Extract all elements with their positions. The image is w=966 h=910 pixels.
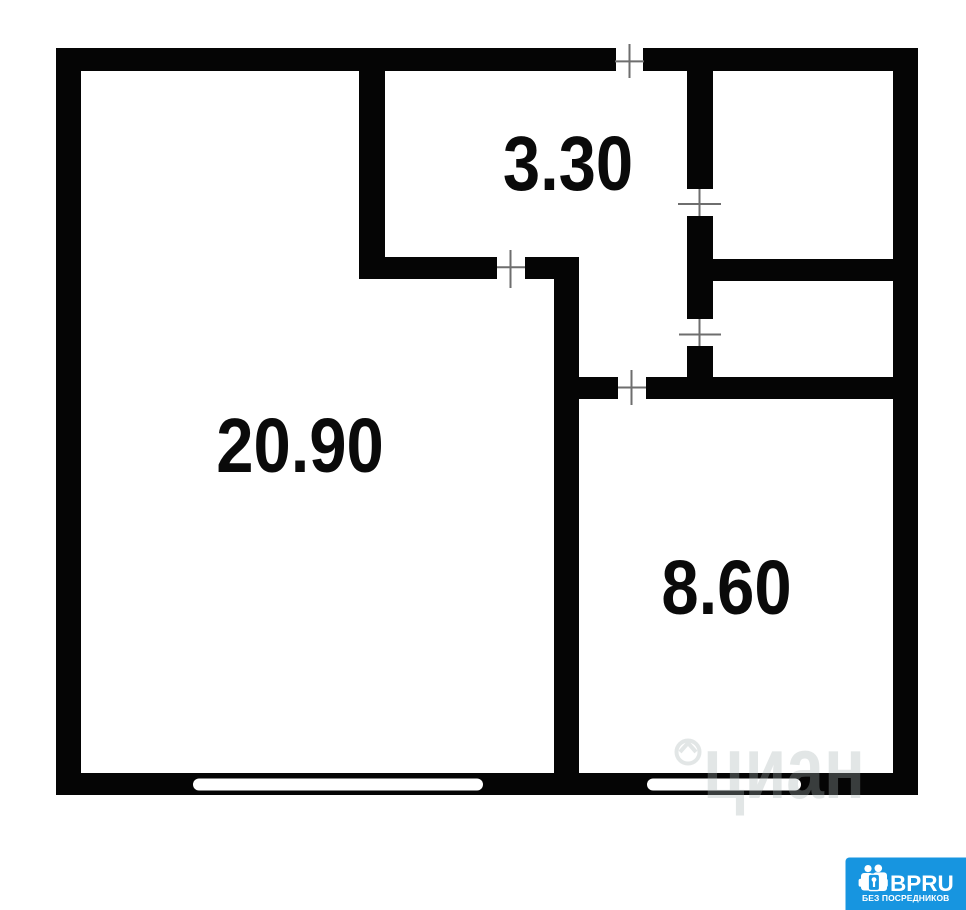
svg-text:БЕЗ ПОСРЕДНИКОВ: БЕЗ ПОСРЕДНИКОВ [862,893,949,903]
svg-text:20.90: 20.90 [216,404,384,489]
svg-text:8.60: 8.60 [661,546,791,631]
svg-text:циан: циан [703,718,865,817]
svg-text:3.30: 3.30 [503,122,633,207]
